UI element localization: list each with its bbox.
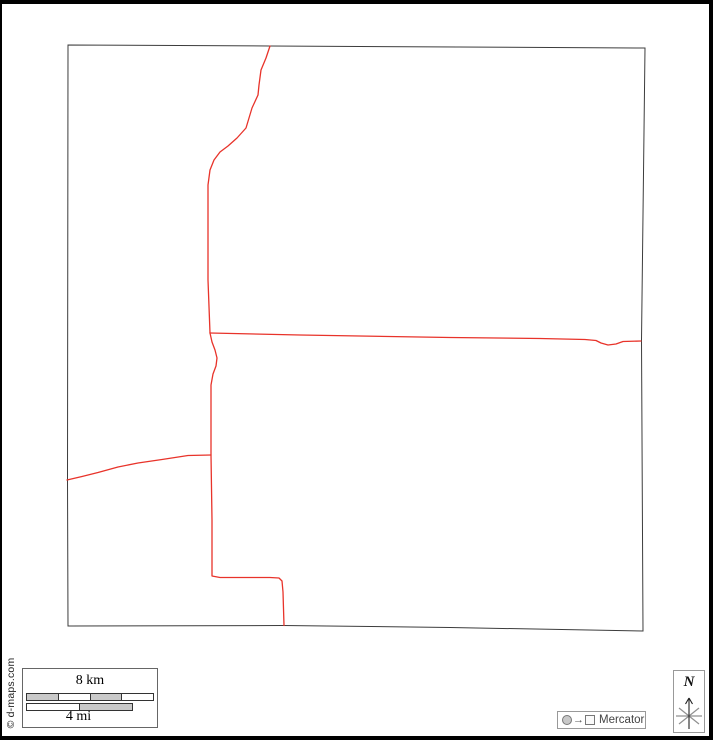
- km-bar-segment: [121, 694, 153, 700]
- north-label: N: [674, 671, 704, 693]
- map-canvas: [0, 0, 713, 740]
- road-south: [210, 333, 284, 626]
- arrow-right-icon: →: [573, 715, 584, 726]
- globe-circle-icon: [562, 715, 572, 725]
- compass-star-icon: [674, 693, 704, 732]
- projection-legend: → Mercator: [557, 711, 646, 729]
- road-west: [67, 455, 211, 480]
- road-north: [208, 46, 270, 333]
- scale-bar: 8 km 4 mi: [22, 668, 158, 728]
- projected-square-icon: [585, 715, 595, 725]
- compass-rose: N: [673, 670, 705, 733]
- km-bar-segment: [90, 694, 122, 700]
- copyright-text: © d-maps.com: [5, 658, 17, 729]
- scale-mi-label: 4 mi: [26, 709, 131, 725]
- km-bar-segment: [58, 694, 90, 700]
- scale-km-bar: [26, 693, 154, 701]
- map-page: 8 km 4 mi → Mercator N © d-maps: [0, 0, 713, 740]
- road-east: [210, 333, 641, 345]
- km-bar-segment: [27, 694, 58, 700]
- scale-km-label: 8 km: [23, 673, 157, 689]
- projection-name: Mercator: [599, 714, 644, 726]
- map-boundary: [68, 45, 646, 631]
